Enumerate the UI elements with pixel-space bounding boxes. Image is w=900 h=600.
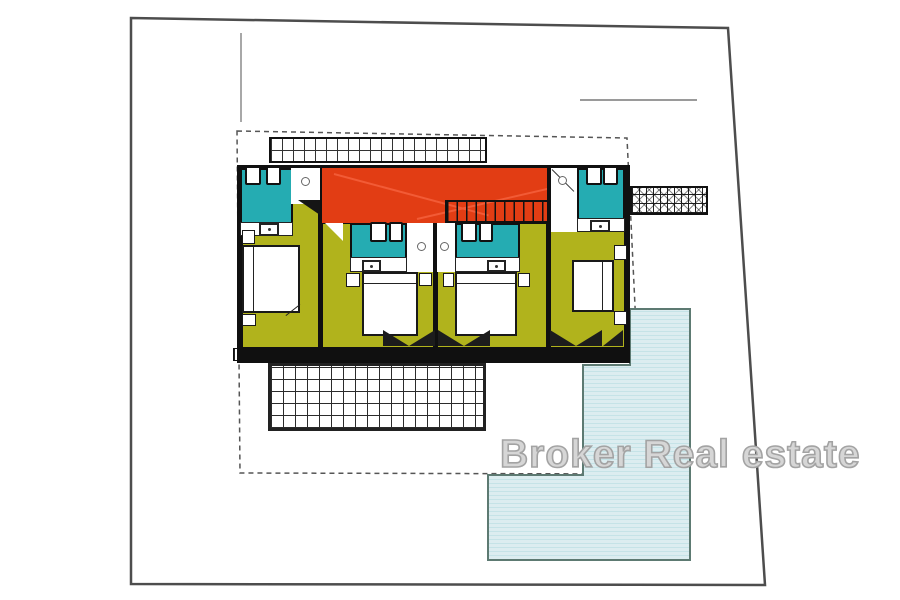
unit-4-door-knob-icon <box>558 176 567 185</box>
unit-3-door-knob-icon <box>440 242 449 251</box>
unit-1-sink-icon <box>259 223 279 236</box>
unit-3-nightstand-1 <box>443 273 454 287</box>
unit-3-bathroom-window-2 <box>479 222 493 242</box>
unit-3-patio-door-swing-left <box>438 330 464 346</box>
unit-3-bathroom-window-1 <box>461 222 477 242</box>
unit-3-bed-icon <box>455 272 517 336</box>
unit-1-door-knob-icon <box>301 177 310 186</box>
unit-4-nightstand-2 <box>614 311 627 325</box>
unit-1-hall <box>291 168 320 204</box>
pergola-north <box>269 137 487 163</box>
unit-4-patio-door-swing-left <box>550 330 576 346</box>
unit-3-sink-icon <box>487 260 506 272</box>
unit-2-nightstand-2 <box>419 273 432 286</box>
unit-4-patio-door-swing-edge <box>603 330 623 346</box>
unit-2-door-knob-icon <box>417 242 426 251</box>
unit-4-vanity-counter <box>577 218 625 232</box>
unit-2-patio-door-swing-left <box>383 330 409 346</box>
unit-1-door-swing-icon <box>298 200 320 215</box>
unit-4-nightstand-1 <box>614 245 627 260</box>
unit-3-patio-door-swing-right <box>464 330 490 346</box>
unit-2-bathroom-window-2 <box>389 222 403 242</box>
unit-3-vanity-counter <box>455 257 520 272</box>
unit-2-entry-notch <box>325 223 343 241</box>
unit-2-bed-icon <box>362 272 418 336</box>
unit-1-bathroom-window-2 <box>266 166 281 185</box>
unit-4-patio-door-swing-right <box>576 330 602 346</box>
floor-plan-canvas: Broker Real estate <box>0 0 900 600</box>
building <box>237 165 630 363</box>
unit-2-bathroom-window-1 <box>370 222 387 242</box>
unit-4-bathroom-window-1 <box>586 166 602 185</box>
unit-2-sink-icon <box>362 260 381 272</box>
unit-1-bathroom-window-1 <box>245 166 261 185</box>
watermark: Broker Real estate <box>500 433 861 477</box>
stairs-icon <box>445 200 547 223</box>
unit-4-bed-icon <box>572 260 614 312</box>
terrace-grid-south <box>268 363 486 431</box>
unit-4-bathroom-window-2 <box>603 166 618 185</box>
wall-south <box>237 347 630 363</box>
unit-2-nightstand-1 <box>346 273 360 287</box>
unit-1-nightstand-2 <box>242 314 256 326</box>
unit-3-nightstand-2 <box>518 273 530 287</box>
unit-4-sink-icon <box>590 220 610 232</box>
pergola-east <box>630 186 708 215</box>
roof-terrace <box>322 168 547 223</box>
unit-2-vanity-counter <box>350 257 407 272</box>
unit-1-bed-icon <box>242 245 300 313</box>
unit-1-nightstand-1 <box>242 230 255 244</box>
unit-2-patio-door-swing-right <box>409 330 435 346</box>
